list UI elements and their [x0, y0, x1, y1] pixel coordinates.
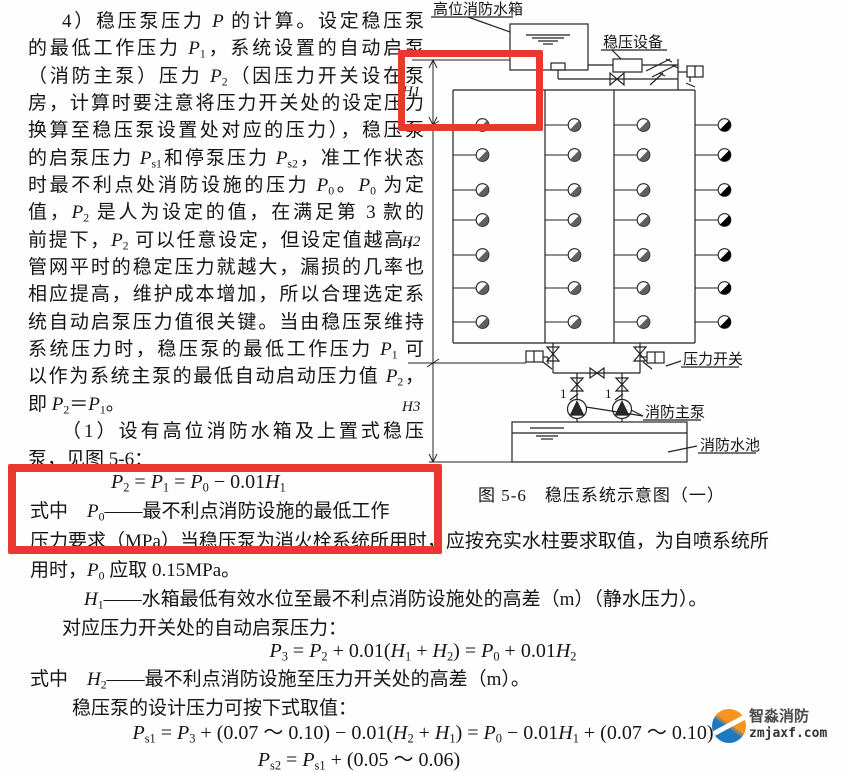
- pressure-switch-left: [526, 351, 552, 369]
- gate-valves: [547, 347, 646, 391]
- dimension-h1-label: H1: [401, 84, 420, 100]
- main-pumps-label: 消防主泵: [645, 404, 705, 421]
- watermark: 智淼消防 zmjaxf.com: [712, 709, 827, 743]
- watermark-url: zmjaxf.com: [749, 727, 827, 740]
- dimension-h3-label: H3: [401, 399, 420, 415]
- pool-label: 消防水池: [700, 437, 760, 454]
- watermark-logo-icon: [712, 709, 746, 743]
- stabilizer-label: 稳压设备: [603, 34, 663, 51]
- figure-caption: 图 5-6 稳压系统示意图（一）: [478, 486, 725, 505]
- top-pressure-gauge: [678, 66, 703, 87]
- stabilized-pressure-system-diagram: 高位消防水箱 稳压设备 压力开关 消防主泵 消防水池 H1 H2 H3 1 1 …: [0, 0, 846, 772]
- dimension-h2-label: H2: [401, 234, 421, 250]
- watermark-text: 智淼消防 zmjaxf.com: [749, 709, 827, 740]
- tank-label-leader: [431, 17, 513, 32]
- pump-number-1: 1: [560, 386, 567, 401]
- document-page: 4）稳压泵压力 P 的计算。设定稳压泵 的最低工作压力 P1，系统设置的自动启泵…: [0, 0, 846, 772]
- dimension-lines: [408, 60, 526, 462]
- tank-label: 高位消防水箱: [433, 1, 523, 18]
- pump-number-2: 1: [605, 386, 612, 401]
- stabilizer-device: [601, 50, 667, 72]
- pressure-switch-label: 压力开关: [683, 351, 743, 368]
- fire-water-tank: [510, 24, 588, 70]
- watermark-brand: 智淼消防: [749, 709, 827, 724]
- sprinkler-heads: [453, 119, 731, 329]
- top-piping: [558, 59, 678, 90]
